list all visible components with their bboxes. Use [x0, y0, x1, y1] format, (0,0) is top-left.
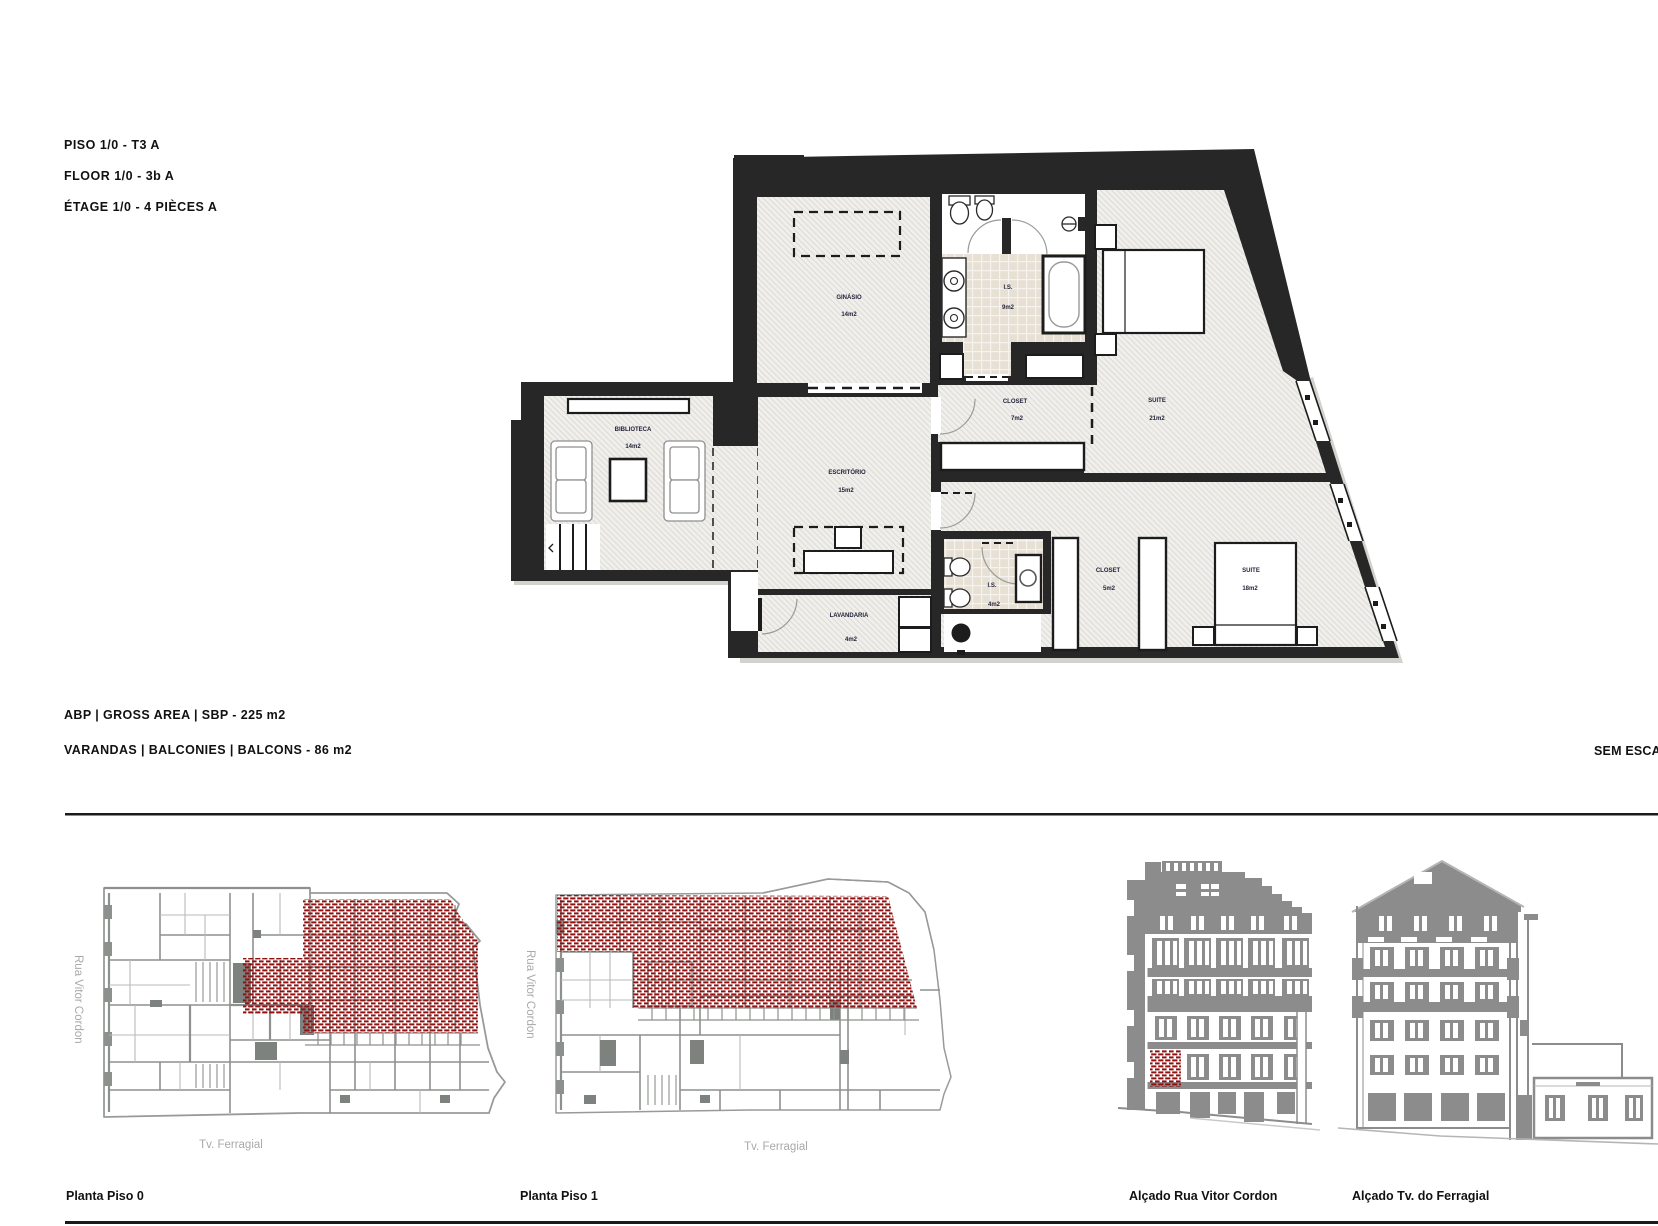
svg-text:Alçado Tv. do Ferragial: Alçado Tv. do Ferragial [1352, 1189, 1489, 1203]
svg-text:FLOOR 1/0 - 3b A: FLOOR 1/0 - 3b A [64, 169, 174, 183]
svg-text:SUITE: SUITE [1148, 398, 1166, 404]
svg-text:PISO 1/0 - T3 A: PISO 1/0 - T3 A [64, 138, 160, 152]
svg-text:18m2: 18m2 [1242, 586, 1258, 592]
svg-text:ESCRITÓRIO: ESCRITÓRIO [828, 468, 866, 476]
svg-text:4m2: 4m2 [988, 602, 1001, 608]
svg-text:Tv. Ferragial: Tv. Ferragial [199, 1139, 263, 1151]
svg-text:21m2: 21m2 [1149, 416, 1165, 422]
svg-text:GINÁSIO: GINÁSIO [836, 294, 862, 301]
svg-text:ÉTAGE 1/0 - 4 PIÈCES A: ÉTAGE 1/0 - 4 PIÈCES A [64, 199, 217, 214]
svg-text:Alçado Rua Vitor Cordon: Alçado Rua Vitor Cordon [1129, 1189, 1277, 1203]
svg-text:CLOSET: CLOSET [1096, 568, 1121, 574]
svg-text:4m2: 4m2 [845, 637, 858, 643]
svg-text:9m2: 9m2 [1002, 305, 1015, 311]
svg-text:Tv. Ferragial: Tv. Ferragial [744, 1141, 808, 1153]
svg-text:14m2: 14m2 [841, 312, 857, 318]
svg-text:Rua Vitor Cordon: Rua Vitor Cordon [72, 955, 84, 1044]
svg-text:VARANDAS | BALCONIES | BALCONS: VARANDAS | BALCONIES | BALCONS - 86 m2 [64, 743, 352, 757]
svg-text:7m2: 7m2 [1011, 416, 1024, 422]
svg-text:I.S.: I.S. [987, 583, 996, 589]
svg-text:BIBLIOTECA: BIBLIOTECA [615, 427, 652, 433]
svg-text:Planta Piso 0: Planta Piso 0 [66, 1189, 144, 1203]
svg-text:5m2: 5m2 [1103, 586, 1116, 592]
svg-text:I.S.: I.S. [1003, 285, 1012, 291]
svg-text:Rua Vitor Cordon: Rua Vitor Cordon [524, 950, 536, 1039]
svg-text:SEM ESCA: SEM ESCA [1594, 744, 1658, 758]
svg-text:LAVANDARIA: LAVANDARIA [830, 613, 869, 619]
svg-text:ABP | GROSS AREA | SBP - 225 m: ABP | GROSS AREA | SBP - 225 m2 [64, 708, 286, 722]
svg-text:14m2: 14m2 [625, 444, 641, 450]
svg-text:CLOSET: CLOSET [1003, 399, 1028, 405]
svg-text:SUITE: SUITE [1242, 568, 1260, 574]
svg-text:Planta Piso 1: Planta Piso 1 [520, 1189, 598, 1203]
svg-text:15m2: 15m2 [838, 488, 854, 494]
